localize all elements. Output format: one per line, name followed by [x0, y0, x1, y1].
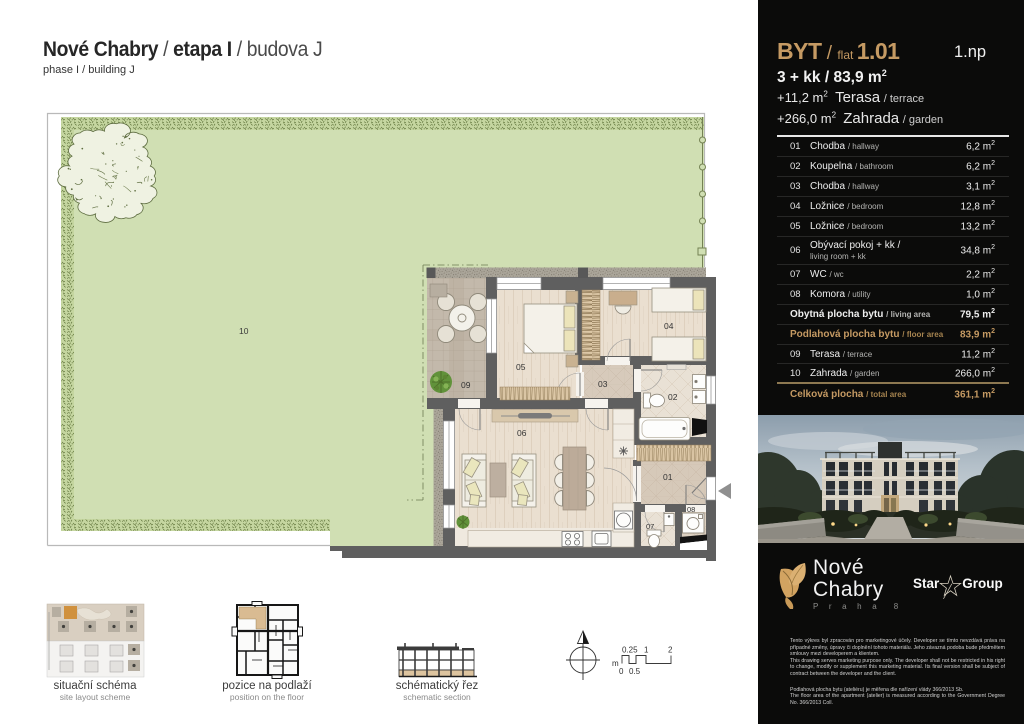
svg-text:01: 01	[663, 472, 673, 482]
svg-text:0.5: 0.5	[629, 667, 641, 676]
svg-text:schématický řez: schématický řez	[396, 680, 479, 692]
svg-text:07: 07	[646, 522, 654, 531]
svg-text:pozice na podlaží: pozice na podlaží	[222, 680, 312, 692]
svg-text:0: 0	[619, 667, 624, 676]
svg-text:03: 03	[598, 379, 608, 389]
svg-text:0.25: 0.25	[622, 646, 638, 655]
svg-text:situační schéma: situační schéma	[53, 680, 137, 692]
svg-text:09: 09	[461, 380, 471, 390]
svg-text:04: 04	[664, 321, 674, 331]
svg-text:05: 05	[516, 362, 526, 372]
svg-text:06: 06	[517, 428, 527, 438]
svg-text:02: 02	[668, 392, 678, 402]
svg-text:site layout scheme: site layout scheme	[60, 692, 131, 702]
svg-text:10: 10	[239, 326, 249, 336]
svg-text:2: 2	[668, 646, 673, 655]
svg-text:1: 1	[644, 646, 649, 655]
svg-text:schematic section: schematic section	[403, 692, 471, 702]
svg-text:m: m	[612, 659, 619, 668]
svg-text:position on the floor: position on the floor	[230, 692, 304, 702]
svg-text:08: 08	[687, 505, 695, 514]
